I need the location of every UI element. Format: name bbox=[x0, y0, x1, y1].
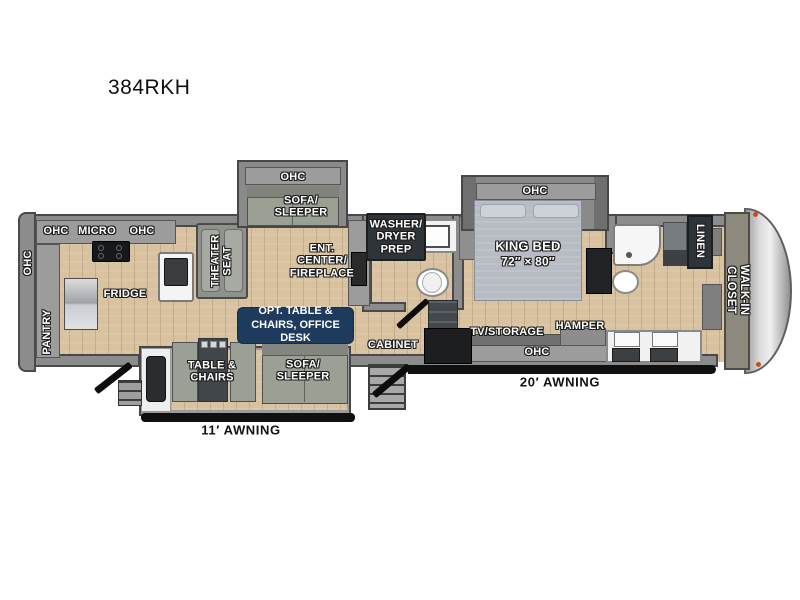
cap-marker-light-top bbox=[753, 212, 758, 217]
label-walk-in-closet: WALK-IN CLOSET bbox=[724, 259, 750, 322]
label-tv-storage: TV/STORAGE bbox=[470, 326, 543, 338]
label-king-slide-ohc: OHC bbox=[522, 185, 547, 197]
vanity-mirror bbox=[614, 332, 640, 347]
awning-bar-11ft bbox=[141, 413, 355, 422]
kitchen-sink bbox=[164, 258, 188, 286]
label-micro: MICRO bbox=[78, 225, 116, 237]
burner bbox=[98, 253, 104, 259]
model-title: 384RKH bbox=[108, 76, 190, 100]
label-ent-center: ENT. CENTER/ FIREPLACE bbox=[290, 243, 354, 280]
shower bbox=[613, 224, 661, 266]
table-item bbox=[201, 341, 208, 348]
vanity-mirror bbox=[652, 332, 678, 347]
label-awning-20: 20′ AWNING bbox=[520, 376, 600, 391]
pillow bbox=[480, 204, 526, 218]
label-pantry: PANTRY bbox=[41, 309, 53, 354]
label-ohc-bedroom: OHC bbox=[524, 346, 549, 358]
label-ohc-kitchen-right: OHC bbox=[129, 225, 154, 237]
stove-cooktop bbox=[92, 241, 130, 262]
vanity-sink bbox=[612, 348, 640, 362]
shower-drain bbox=[626, 252, 632, 258]
rear-entry-steps bbox=[118, 380, 142, 406]
label-awning-11: 11′ AWNING bbox=[201, 424, 280, 439]
label-king-size: 72″ × 80″ bbox=[501, 255, 555, 268]
table-item bbox=[219, 341, 226, 348]
cap-marker-light-bottom bbox=[756, 362, 761, 367]
label-fridge: FRIDGE bbox=[104, 288, 147, 300]
toilet-seat bbox=[422, 272, 442, 293]
label-ohc-kitchen-left: OHC bbox=[43, 225, 68, 237]
fridge bbox=[64, 278, 98, 330]
cabinet-unit bbox=[424, 328, 472, 364]
label-sofa-slide-ohc: OHC bbox=[280, 171, 305, 183]
burner bbox=[116, 253, 122, 259]
vanity-sink bbox=[650, 348, 678, 362]
bath-cabinet-base bbox=[663, 250, 687, 266]
rear-wall bbox=[18, 212, 36, 372]
label-hamper: HAMPER bbox=[556, 320, 605, 332]
label-sofa-sleeper: SOFA/ SLEEPER bbox=[275, 195, 328, 220]
table-item bbox=[210, 341, 217, 348]
awning-bar-20ft bbox=[408, 365, 716, 374]
label-cabinet: CABINET bbox=[368, 339, 418, 351]
label-theater-seat: THEATER SEAT bbox=[210, 235, 235, 288]
label-washer-dryer-prep: WASHER/ DRYER PREP bbox=[370, 219, 423, 256]
option-callout-text: OPT. TABLE & CHAIRS, OFFICE DESK bbox=[238, 305, 353, 346]
front-cap bbox=[744, 208, 792, 374]
option-callout: OPT. TABLE & CHAIRS, OFFICE DESK bbox=[237, 307, 354, 344]
label-king-bed: KING BED bbox=[495, 240, 560, 255]
slide-window bbox=[146, 356, 166, 402]
closet-shelf-lower bbox=[702, 284, 722, 330]
pillow bbox=[533, 204, 579, 218]
label-ohc-rear-wall: OHC bbox=[22, 250, 34, 275]
toilet-2 bbox=[612, 270, 639, 294]
label-table-chairs: TABLE & CHAIRS bbox=[188, 360, 236, 385]
bedroom-tv-cabinet bbox=[586, 248, 612, 294]
label-sofa-sleeper-2: SOFA/ SLEEPER bbox=[277, 359, 330, 384]
floorplan-canvas: 384RKH bbox=[0, 0, 800, 600]
burner bbox=[98, 245, 104, 251]
label-linen: LINEN bbox=[694, 224, 706, 258]
burner bbox=[116, 245, 122, 251]
